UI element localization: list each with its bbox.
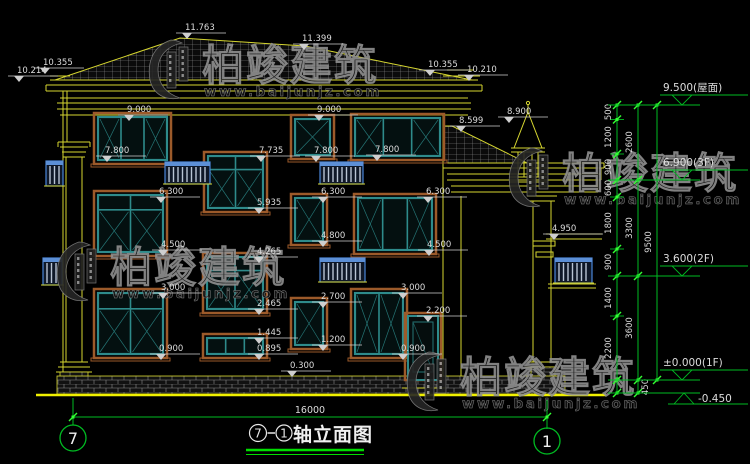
axis-number: 7 bbox=[68, 429, 78, 448]
svg-text:8.900: 8.900 bbox=[507, 107, 531, 117]
axis-number: 1 bbox=[542, 432, 552, 451]
svg-text:3.000: 3.000 bbox=[161, 283, 185, 293]
svg-text:4.500: 4.500 bbox=[161, 240, 185, 250]
facade-dim-label: 8.900 bbox=[498, 107, 548, 123]
overall-width-dim: 16000 bbox=[295, 405, 325, 416]
chain-dim-text: 900 bbox=[604, 159, 614, 175]
watermark: 柏竣建筑www.baijunjz.com bbox=[407, 352, 640, 412]
chain-dim-text: 500 bbox=[604, 104, 614, 120]
svg-text:11.763: 11.763 bbox=[185, 23, 215, 33]
svg-text:4.950: 4.950 bbox=[552, 224, 576, 234]
svg-text:0.895: 0.895 bbox=[257, 344, 281, 354]
svg-text:1.445: 1.445 bbox=[257, 328, 281, 338]
title-axis-1: 1 bbox=[280, 427, 288, 441]
chain-dim-text: 9500 bbox=[644, 231, 654, 253]
drawing-title: 轴立面图 bbox=[293, 423, 373, 446]
svg-text:6.300: 6.300 bbox=[159, 187, 183, 197]
svg-text:3.000: 3.000 bbox=[401, 283, 425, 293]
svg-text:9.000: 9.000 bbox=[127, 105, 151, 115]
porch-roof bbox=[443, 126, 527, 163]
svg-text:4.265: 4.265 bbox=[257, 247, 281, 257]
facade-dim-label: 0.300 bbox=[281, 361, 331, 377]
window bbox=[348, 114, 447, 163]
svg-text:±0.000(1F): ±0.000(1F) bbox=[663, 357, 723, 369]
elevation-marker: 3.600(2F) bbox=[608, 253, 748, 276]
svg-text:-0.450: -0.450 bbox=[698, 393, 732, 405]
balcony-railing bbox=[318, 258, 367, 282]
title-block: 7 1 轴立面图 bbox=[246, 423, 373, 455]
svg-text:6.300: 6.300 bbox=[426, 187, 450, 197]
chain-dim-text: 1400 bbox=[604, 287, 614, 309]
elevation-marker: 9.500(屋面) bbox=[608, 82, 748, 105]
facade-dim-label: 11.763 bbox=[176, 23, 226, 39]
facade-dim-label: 4.950 bbox=[543, 224, 603, 240]
chain-dim-text: 3600 bbox=[625, 317, 635, 339]
chain-dim-text: 2200 bbox=[604, 337, 614, 359]
svg-text:2.700: 2.700 bbox=[321, 292, 345, 302]
balcony-railing bbox=[163, 162, 212, 184]
svg-text:6.900(3F): 6.900(3F) bbox=[663, 157, 714, 169]
left-pilaster bbox=[56, 91, 92, 394]
svg-text:3.600(2F): 3.600(2F) bbox=[663, 253, 714, 265]
watermark-brand-text: 柏竣建筑 bbox=[460, 353, 636, 402]
window bbox=[351, 194, 439, 257]
watermark-url-text: www.baijunjz.com bbox=[204, 84, 382, 100]
chain-dim-text: 600 bbox=[604, 180, 614, 196]
svg-text:8.599: 8.599 bbox=[459, 116, 483, 126]
svg-text:7.800: 7.800 bbox=[105, 146, 129, 156]
svg-text:10.210: 10.210 bbox=[467, 65, 497, 75]
balcony-railing bbox=[553, 258, 594, 283]
svg-text:10.355: 10.355 bbox=[43, 58, 73, 68]
svg-text:2.200: 2.200 bbox=[426, 306, 450, 316]
svg-text:7.800: 7.800 bbox=[314, 146, 338, 156]
balcony-railing bbox=[44, 161, 65, 186]
watermark-url-text: www.baijunjz.com bbox=[564, 192, 742, 208]
chain-dim-text: 3300 bbox=[625, 217, 635, 239]
svg-text:7.800: 7.800 bbox=[375, 145, 399, 155]
svg-text:9.000: 9.000 bbox=[317, 105, 341, 115]
chain-dim-text: 1800 bbox=[604, 212, 614, 234]
title-axis-7: 7 bbox=[254, 427, 262, 441]
svg-text:9.500(屋面): 9.500(屋面) bbox=[663, 82, 722, 94]
svg-text:4.500: 4.500 bbox=[427, 240, 451, 250]
watermark-url-text: www.baijunjz.com bbox=[462, 396, 640, 412]
svg-text:2.465: 2.465 bbox=[257, 299, 281, 309]
drawing-canvas: 柏竣建筑www.baijunjz.com柏竣建筑www.baijunjz.com… bbox=[0, 0, 750, 464]
svg-text:11.399: 11.399 bbox=[302, 34, 332, 44]
svg-text:0.300: 0.300 bbox=[290, 361, 314, 371]
svg-text:5.935: 5.935 bbox=[257, 198, 281, 208]
cad-elevation-drawing: 柏竣建筑www.baijunjz.com柏竣建筑www.baijunjz.com… bbox=[0, 0, 750, 464]
window bbox=[91, 113, 174, 167]
svg-text:0.900: 0.900 bbox=[159, 344, 183, 354]
svg-text:1.200: 1.200 bbox=[321, 335, 345, 345]
svg-text:6.300: 6.300 bbox=[321, 187, 345, 197]
chain-dim-text: 900 bbox=[604, 254, 614, 270]
chain-dim-text: 1200 bbox=[604, 126, 614, 148]
svg-text:10.355: 10.355 bbox=[428, 60, 458, 70]
chain-dim-text: 2600 bbox=[625, 131, 635, 153]
balcony-railing bbox=[318, 162, 365, 184]
svg-text:0.900: 0.900 bbox=[401, 344, 425, 354]
svg-text:7.735: 7.735 bbox=[259, 146, 283, 156]
svg-text:4.800: 4.800 bbox=[321, 231, 345, 241]
watermark-brand-text: 柏竣建筑 bbox=[202, 41, 378, 90]
